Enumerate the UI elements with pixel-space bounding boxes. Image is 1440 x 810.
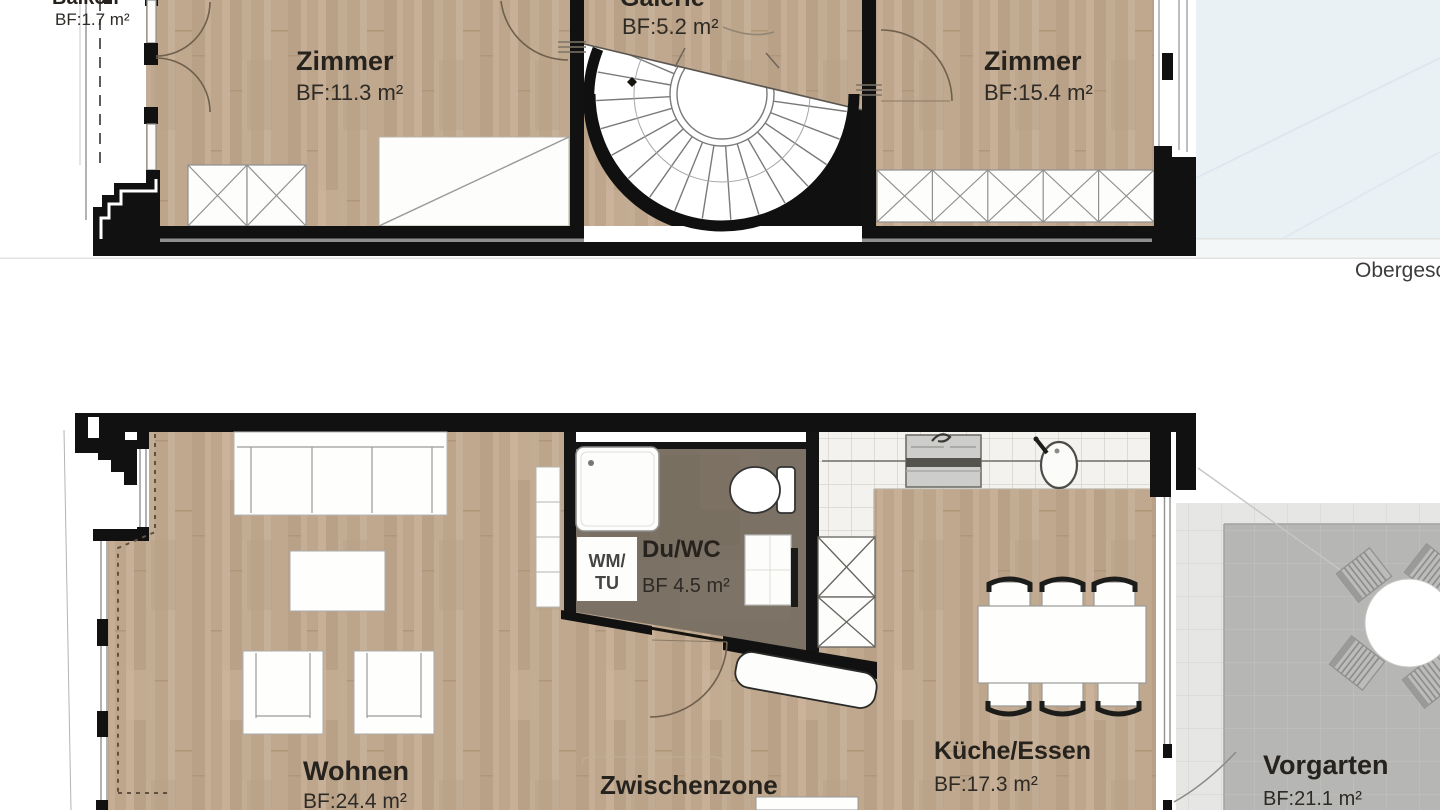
svg-text:Wohnen: Wohnen <box>303 756 409 786</box>
svg-text:Vorgarten: Vorgarten <box>1263 750 1389 780</box>
svg-text:BF:21.1 m²: BF:21.1 m² <box>1263 788 1362 810</box>
svg-text:BF:5.2 m²: BF:5.2 m² <box>622 14 719 39</box>
svg-text:WM/: WM/ <box>589 551 626 571</box>
svg-text:Küche/Essen: Küche/Essen <box>934 737 1091 765</box>
svg-text:Balkon: Balkon <box>52 0 119 9</box>
svg-text:BF:11.3 m²: BF:11.3 m² <box>296 80 403 105</box>
svg-text:BF:15.4 m²: BF:15.4 m² <box>984 80 1093 105</box>
svg-text:Zwischenzone: Zwischenzone <box>600 770 778 800</box>
svg-text:BF:17.3 m²: BF:17.3 m² <box>934 773 1038 796</box>
svg-text:Obergeschoss: Obergeschoss <box>1355 259 1440 282</box>
svg-text:Zimmer: Zimmer <box>984 46 1082 76</box>
svg-text:Du/WC: Du/WC <box>642 536 721 563</box>
svg-text:Galerie: Galerie <box>620 0 705 12</box>
svg-text:BF:24.4 m²: BF:24.4 m² <box>303 790 407 810</box>
svg-text:BF:1.7 m²: BF:1.7 m² <box>55 10 130 29</box>
svg-text:BF 4.5 m²: BF 4.5 m² <box>642 575 730 597</box>
svg-text:Zimmer: Zimmer <box>296 46 394 76</box>
svg-text:TU: TU <box>595 573 619 593</box>
